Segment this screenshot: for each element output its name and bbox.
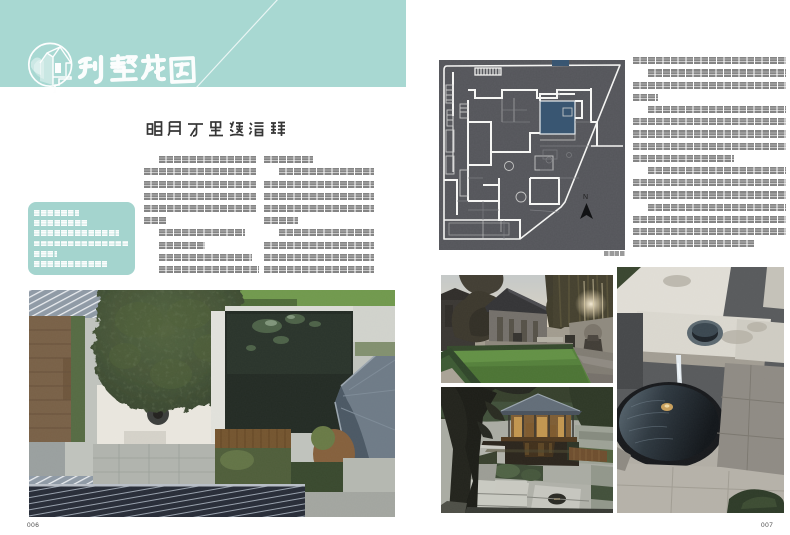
svg-text:N: N [583,194,588,201]
